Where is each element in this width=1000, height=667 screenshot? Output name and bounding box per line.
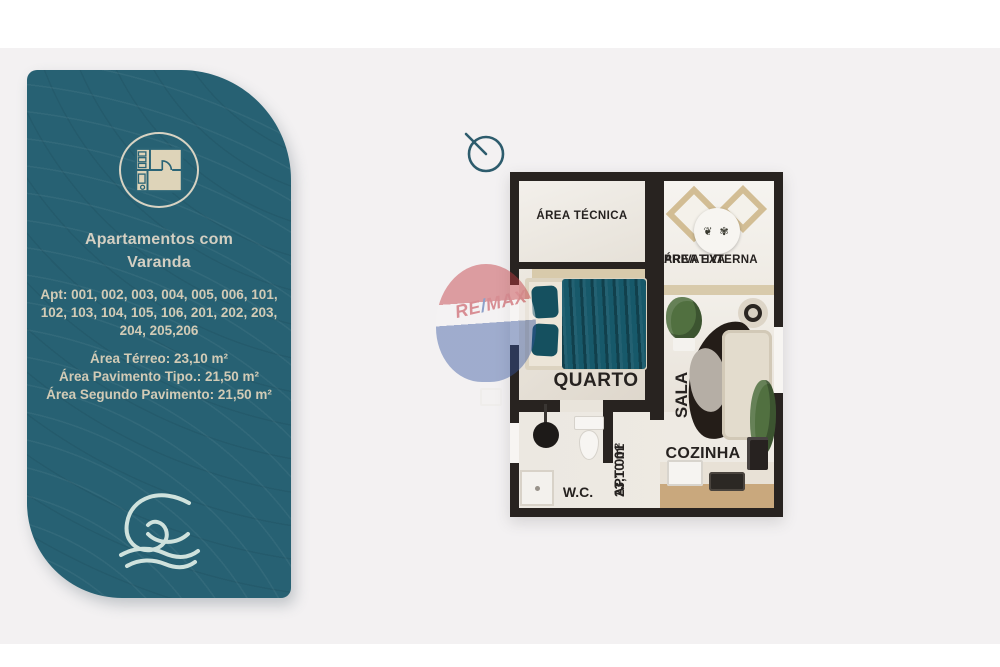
listing-image: Apartamentos com Varanda Apt: 001, 002, … — [0, 0, 1000, 667]
wc-round-sink — [533, 422, 559, 448]
floor-plan: ❦ ✾ ÁREA TÉCNICA ÁREA EXTERNA — [510, 172, 783, 517]
balloon-basket — [480, 388, 502, 406]
area-pavimento-tipo: Área Pavimento Tipo.: 21,50 m² — [27, 368, 291, 386]
remax-watermark: RE/MAX — [436, 264, 546, 410]
balcony-ledge — [664, 285, 774, 295]
kitchen-sink — [667, 460, 703, 486]
apartment-list-line1: Apt: 001, 002, 003, 004, 005, 006, 101, — [27, 286, 291, 304]
apartment-list: Apt: 001, 002, 003, 004, 005, 006, 101, … — [27, 286, 291, 339]
label-wc: W.C. — [550, 484, 606, 500]
toilet-tank — [574, 416, 604, 430]
wave-logo — [109, 488, 209, 574]
bed-blanket — [562, 279, 646, 369]
plant — [666, 297, 702, 341]
panel-title-line2: Varanda — [27, 251, 291, 274]
floorplan-icon — [119, 132, 199, 208]
north-compass-icon — [456, 124, 512, 180]
label-sala: SALA — [672, 365, 692, 425]
panel-title: Apartamentos com Varanda — [27, 228, 291, 274]
stove — [709, 472, 745, 491]
shower-drain — [535, 486, 540, 491]
patio-table-decor: ❦ ✾ — [703, 225, 731, 238]
door-opening — [560, 400, 603, 412]
floorplan-icon-glyph — [134, 147, 184, 193]
fridge — [747, 437, 768, 470]
label-apt-number: APT 001 23,10 m² — [610, 423, 650, 497]
area-list: Área Térreo: 23,10 m² Área Pavimento Tip… — [27, 350, 291, 404]
area-terreo: Área Térreo: 23,10 m² — [27, 350, 291, 368]
label-quarto: QUARTO — [544, 370, 648, 392]
window-right — [774, 327, 783, 393]
info-panel: Apartamentos com Varanda Apt: 001, 002, … — [27, 70, 291, 598]
apartment-list-line2: 102, 103, 104, 105, 106, 201, 202, 203, — [27, 304, 291, 322]
top-white-band — [0, 0, 1000, 48]
patio-table: ❦ ✾ — [694, 208, 740, 254]
plant-pot — [673, 338, 695, 351]
bottom-white-band — [0, 644, 1000, 667]
shower — [520, 470, 554, 506]
label-cozinha: COZINHA — [661, 445, 745, 463]
panel-title-line1: Apartamentos com — [27, 228, 291, 251]
lamp — [744, 304, 762, 322]
apartment-list-line3: 204, 205,206 — [27, 322, 291, 340]
window-left-2 — [510, 423, 519, 463]
area-segundo-pavimento: Área Segundo Pavimento: 21,50 m² — [27, 386, 291, 404]
wall-stub — [650, 412, 664, 420]
label-area-tecnica: ÁREA TÉCNICA — [519, 210, 645, 222]
